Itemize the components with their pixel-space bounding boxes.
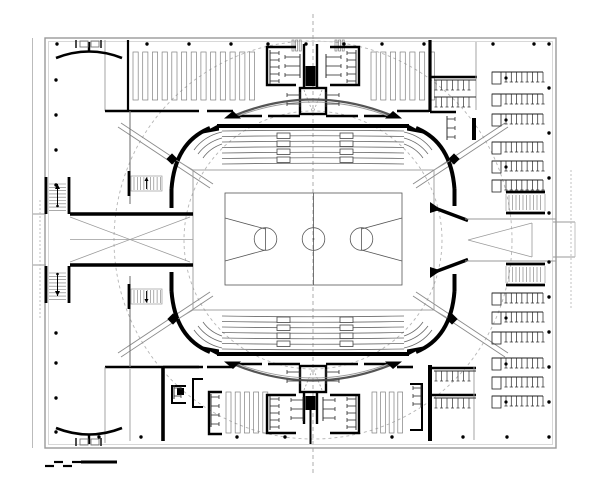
column-dot — [187, 42, 190, 45]
seat-row — [222, 130, 404, 131]
hatch-bar — [133, 52, 138, 100]
north-service-core — [300, 44, 326, 114]
vomitory-step — [277, 141, 290, 147]
key-line — [362, 218, 403, 229]
fixture-comb — [326, 54, 341, 78]
hatch-bar — [254, 392, 259, 433]
hatch-bar — [390, 52, 395, 100]
key-line — [225, 218, 266, 229]
hatch-bar — [420, 52, 425, 100]
hatch-bar — [182, 52, 187, 100]
vomitory-step — [340, 133, 353, 139]
bowl-corner-arc-se — [416, 291, 455, 352]
column-dot — [54, 113, 57, 116]
hatch-bar — [244, 392, 249, 433]
west-entrance — [70, 214, 193, 265]
column-dot — [54, 183, 57, 186]
fixture-comb — [447, 116, 455, 140]
hatch-bar — [226, 392, 231, 433]
column-dot — [547, 211, 550, 214]
hatch-bar — [240, 52, 245, 100]
column-dot — [145, 42, 148, 45]
staircase — [145, 299, 149, 303]
vomitory-step — [277, 157, 290, 163]
southwest-room — [130, 367, 203, 441]
bench-row — [492, 312, 545, 324]
bench-row — [492, 396, 545, 408]
column-dot — [547, 435, 550, 438]
column-dot — [504, 118, 507, 121]
fixture-comb — [211, 394, 219, 427]
west-canopies — [56, 40, 122, 446]
bench-row — [492, 114, 545, 126]
southeast-room — [410, 365, 476, 441]
basketball-court — [225, 193, 402, 285]
column-dot — [547, 42, 550, 45]
vomitory-step — [340, 141, 353, 147]
fixture-comb — [347, 396, 356, 430]
vomitory-step — [340, 149, 353, 155]
column-dot — [54, 430, 57, 433]
bench-row — [492, 94, 545, 106]
column-dot — [139, 435, 142, 438]
seat-row — [222, 349, 404, 350]
northwest-canopy-arc — [56, 52, 122, 59]
column-dot — [504, 76, 507, 79]
east-wing-bench-rows — [492, 72, 545, 408]
bench-row — [492, 293, 545, 305]
column-dot — [54, 396, 57, 399]
column-dot — [504, 400, 507, 403]
staircases — [46, 171, 545, 309]
vomitory-step — [277, 325, 290, 331]
seat-row — [222, 158, 404, 159]
column-dot — [304, 42, 307, 45]
bench-row — [492, 332, 545, 344]
key-line — [362, 250, 403, 261]
hatch-bar — [400, 52, 405, 100]
column-dot — [547, 176, 550, 179]
southwest-canopy-arc — [56, 428, 122, 435]
hatch-bar — [162, 52, 167, 100]
fixture-row — [434, 80, 476, 90]
fixture-comb — [270, 50, 279, 84]
hatch-bar — [398, 392, 403, 433]
staircase — [56, 205, 59, 208]
column-dot — [283, 435, 286, 438]
fixture-row — [434, 97, 476, 107]
column-dot — [54, 148, 57, 151]
east-ramp-line — [468, 223, 532, 240]
bowl-corner-arc-nw — [172, 128, 211, 189]
bench-row — [492, 358, 545, 370]
hatch-bar — [152, 52, 157, 100]
vomitory-step — [277, 333, 290, 339]
vomitory-step — [277, 341, 290, 347]
east-ramp-line — [468, 240, 532, 257]
vomitory-step — [340, 157, 353, 163]
vomitory-step — [340, 341, 353, 347]
fixture-comb — [270, 396, 279, 430]
seat-row — [222, 152, 404, 153]
hatch-bar — [371, 52, 376, 100]
vomitory-step — [277, 149, 290, 155]
hatch-bar — [410, 52, 415, 100]
column-dot — [504, 316, 507, 319]
column-dot — [461, 435, 464, 438]
fixture-comb — [323, 397, 335, 421]
column-dot — [504, 362, 507, 365]
column-dot — [97, 435, 100, 438]
column-dot — [55, 42, 58, 45]
hatch-bar — [211, 52, 216, 100]
staircase — [56, 273, 59, 276]
column-dot — [547, 260, 550, 263]
hatch-bar — [381, 52, 386, 100]
stair-arrow — [55, 291, 60, 296]
column-dot — [235, 435, 238, 438]
storage-hatch-rooms — [133, 40, 434, 433]
column-dot — [342, 42, 345, 45]
column-dot — [547, 365, 550, 368]
vomitory-step — [340, 325, 353, 331]
bench-row — [492, 142, 545, 154]
hatch-bar — [201, 52, 206, 100]
arena-floor-plan-drawing — [0, 0, 600, 485]
column-dot — [54, 361, 57, 364]
bench-row — [492, 377, 545, 389]
column-dot — [547, 131, 550, 134]
bowl-corner-arc-sw — [172, 291, 211, 352]
key-line — [225, 250, 266, 261]
vomitory-step — [340, 317, 353, 323]
hatch-bar — [220, 52, 225, 100]
bench-row — [492, 72, 545, 84]
column-dot — [547, 295, 550, 298]
column-dot — [547, 400, 550, 403]
column-dot — [547, 86, 550, 89]
column-dot — [380, 42, 383, 45]
hatch-bar — [389, 392, 394, 433]
column-dot — [504, 165, 507, 168]
hatch-bar — [191, 52, 196, 100]
graphic-scale-bar — [45, 462, 117, 466]
column-dot — [229, 42, 232, 45]
seat-row — [222, 327, 404, 328]
column-dot — [532, 42, 535, 45]
fixture-row — [434, 371, 476, 381]
hatch-bar — [172, 52, 177, 100]
vomitory-step — [340, 333, 353, 339]
column-dot — [491, 42, 494, 45]
column-dot — [390, 435, 393, 438]
fixture-comb — [347, 50, 356, 84]
bench-row — [492, 180, 545, 192]
floor-plan-page — [0, 0, 600, 485]
hatch-bar — [249, 52, 254, 100]
column-dot — [547, 330, 550, 333]
column-dot — [54, 331, 57, 334]
column-dot — [54, 78, 57, 81]
vomitory-step — [277, 317, 290, 323]
fixture-comb — [285, 54, 300, 78]
column-dot — [422, 42, 425, 45]
fixture-row — [434, 398, 476, 408]
seat-row — [222, 322, 404, 323]
vomitory-step — [277, 133, 290, 139]
fixture-comb — [413, 385, 421, 407]
hatch-bar — [235, 392, 240, 433]
fixture-comb — [291, 397, 303, 421]
hatch-bar — [143, 52, 148, 100]
bench-row — [492, 161, 545, 173]
hatch-bar — [372, 392, 377, 433]
vomitory-stairs — [277, 133, 353, 347]
column-dot — [505, 435, 508, 438]
column-dot — [266, 42, 269, 45]
staircase — [145, 177, 149, 181]
